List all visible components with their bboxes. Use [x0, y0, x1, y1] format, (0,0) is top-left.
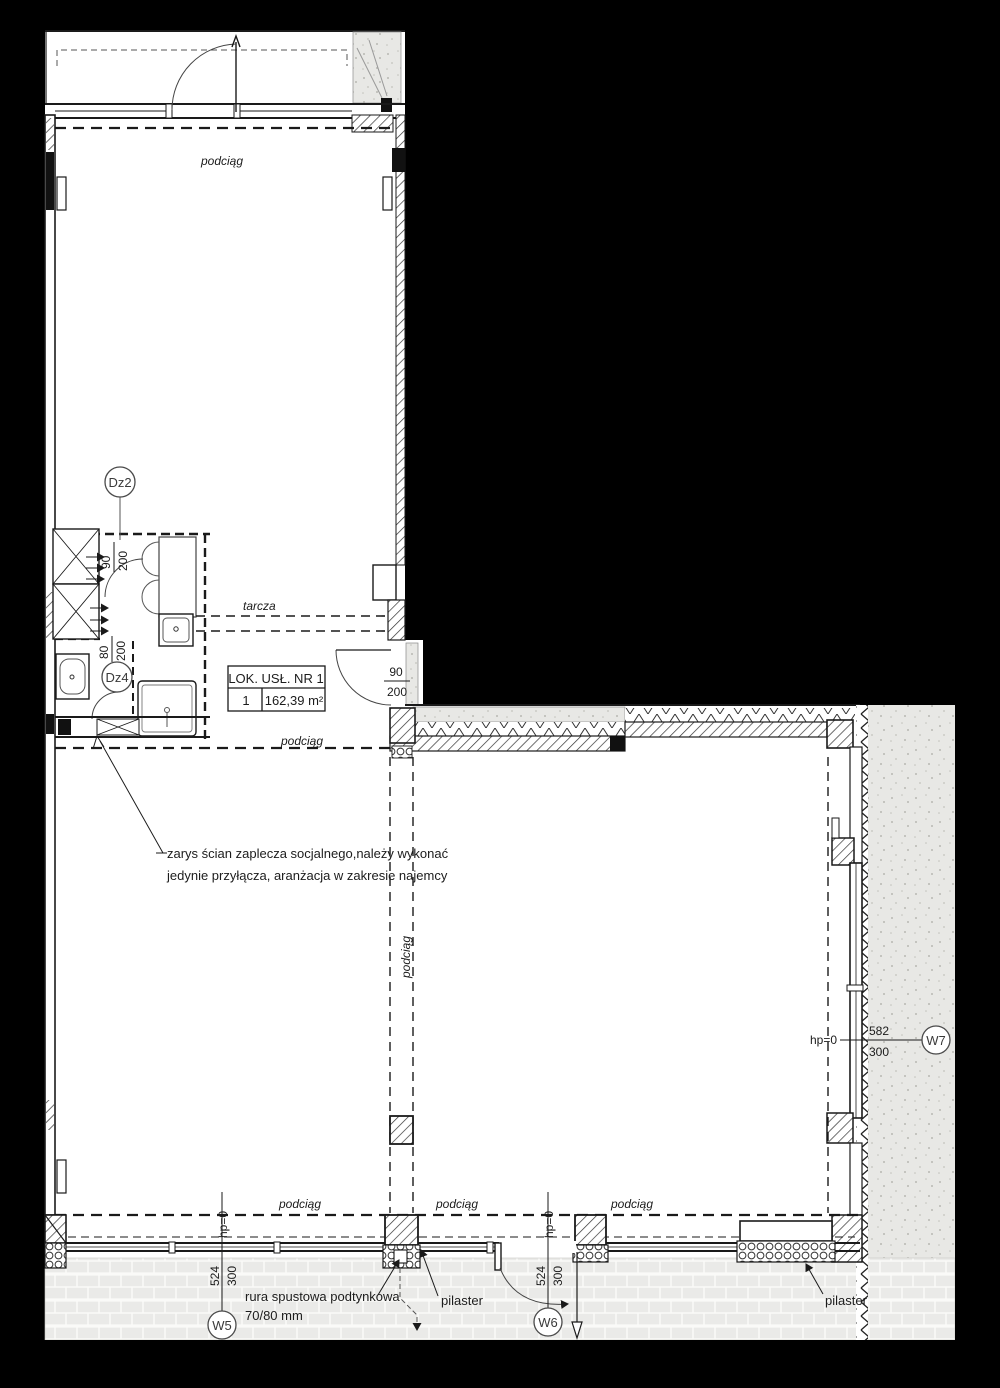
w5-label: W5 — [212, 1318, 232, 1333]
w7-label: W7 — [926, 1033, 946, 1048]
room-info-table: LOK. USŁ. NR 1 1 162,39 m² — [228, 666, 325, 711]
w7-dim-bottom: 300 — [869, 1045, 889, 1059]
w6-dim-bottom: 300 — [551, 1266, 565, 1286]
column — [390, 1116, 413, 1144]
pilaster-label-left: pilaster — [441, 1293, 484, 1308]
room-title: LOK. USŁ. NR 1 — [228, 671, 323, 686]
terrain-texture — [862, 705, 955, 1260]
beam-label-top: podciąg — [200, 154, 243, 168]
dz4-marker-group: Dz4 — [102, 662, 132, 692]
w5-dim-bottom: 300 — [225, 1266, 239, 1286]
dim-200: 200 — [116, 551, 130, 571]
hp0-w7: hp=0 — [810, 1033, 837, 1047]
w7-dim-top: 582 — [869, 1024, 889, 1038]
wall-recess — [373, 565, 396, 600]
closet — [53, 529, 99, 639]
washbasin — [56, 654, 89, 699]
room-index: 1 — [242, 693, 249, 708]
right-black-mask — [955, 705, 1000, 1345]
dim-80: 80 — [97, 645, 111, 659]
hp0-w6: hp=0 — [542, 1211, 556, 1238]
beam-label-mid: podciąg — [280, 734, 323, 748]
beam-label-b1: podciąg — [278, 1197, 321, 1211]
door-jamb — [406, 643, 418, 705]
pilaster-w6 — [573, 1215, 608, 1262]
pilaster-w5 — [383, 1215, 420, 1268]
pilaster-label-right: pilaster — [825, 1293, 868, 1308]
window-mullion — [274, 1242, 280, 1253]
window-mullion — [234, 104, 240, 118]
downpipe-note-line1: rura spustowa podtynkowa — [245, 1289, 400, 1304]
w6-label: W6 — [538, 1315, 558, 1330]
hp0-w5: hp=0 — [216, 1211, 230, 1238]
junction-column — [390, 708, 415, 743]
window-mullion — [487, 1242, 493, 1253]
floor-plan-drawing: podciąg — [0, 0, 1000, 1388]
door-width: 90 — [389, 665, 403, 679]
tarcza-label: tarcza — [243, 599, 276, 613]
window-mullion — [169, 1242, 175, 1253]
w5-dim-top: 524 — [208, 1266, 222, 1286]
dim-90: 90 — [99, 555, 113, 569]
low-wall-right — [737, 1221, 835, 1262]
beam-label-b2: podciąg — [435, 1197, 478, 1211]
floor-plan-page: podciąg — [0, 0, 1000, 1388]
corner-left — [45, 1215, 66, 1268]
wall-niche — [57, 177, 66, 210]
window-mullion — [166, 104, 172, 118]
dz4-label: Dz4 — [105, 670, 128, 685]
beam-label-b3: podciąg — [610, 1197, 653, 1211]
bottom-black-mask — [0, 1340, 1000, 1388]
outline-note-line1: zarys ścian zaplecza socjalnego,należy w… — [167, 846, 449, 861]
dim-200b: 200 — [114, 641, 128, 661]
window-mullion — [847, 985, 863, 991]
dz2-label: Dz2 — [108, 475, 131, 490]
room-area: 162,39 m² — [265, 693, 324, 708]
door-height: 200 — [387, 685, 407, 699]
wall-niche — [57, 1160, 66, 1193]
shower — [138, 681, 196, 736]
downpipe-note-line2: 70/80 mm — [245, 1308, 303, 1323]
w6-dim-top: 524 — [534, 1266, 548, 1286]
beam-label-vertical: podciąg — [399, 936, 413, 979]
outline-note-line2: jedynie przyłącza, aranżacja w zakresie … — [166, 868, 448, 883]
